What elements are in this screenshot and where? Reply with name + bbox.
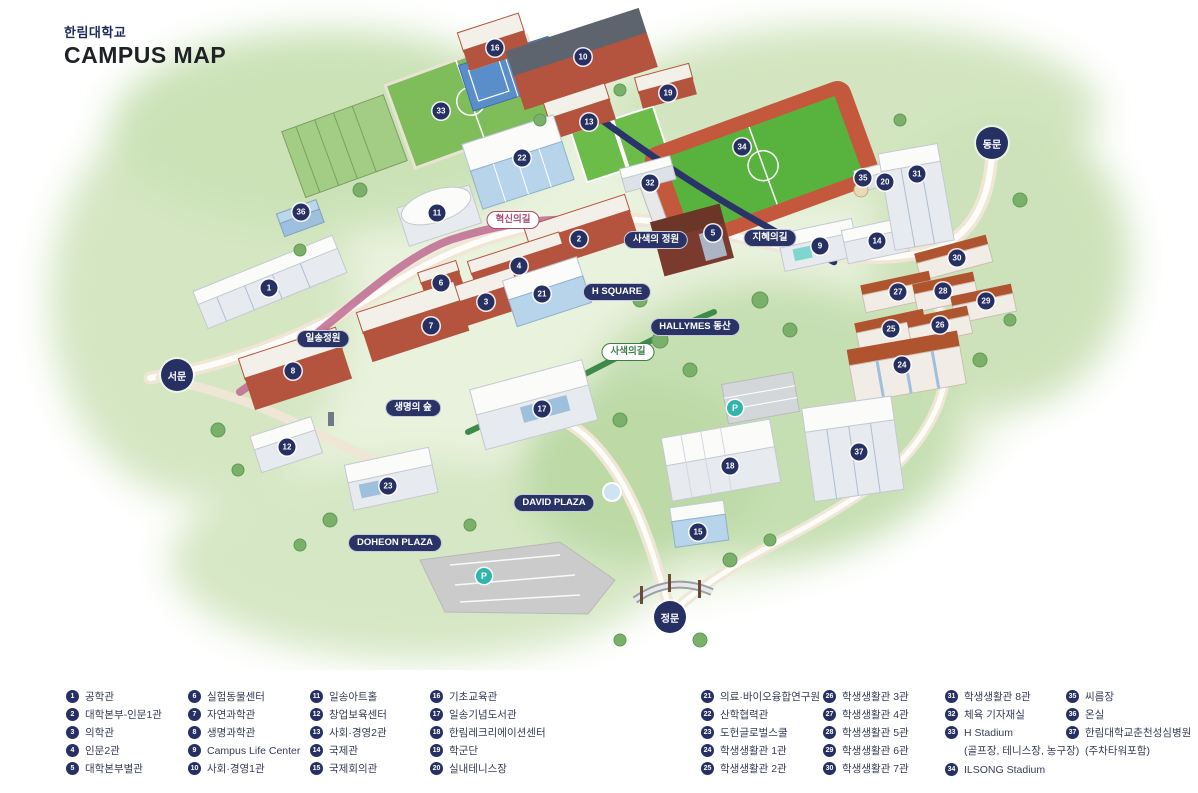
legend-item: 33H Stadium(골프장, 테니스장, 농구장)	[945, 726, 1079, 758]
legend-item: 18한림레크리에이션센터	[430, 726, 546, 739]
legend-entry: 1공학관	[66, 690, 162, 703]
legend-label: 일송기념도서관	[449, 707, 517, 722]
legend-label: 도헌글로벌스쿨	[720, 725, 788, 740]
gate-badge: 동문	[976, 127, 1008, 159]
legend-item: 31학생생활관 8관	[945, 690, 1079, 703]
legend-number: 2	[66, 708, 79, 721]
legend-entry: 12창업보육센터	[310, 708, 387, 721]
legend-label: 학생생활관 4관	[842, 707, 909, 722]
path-label: 지혜의길	[744, 229, 797, 247]
legend-number: 10	[188, 762, 201, 775]
legend-label: 국제관	[329, 743, 358, 758]
legend-entry: 16기초교육관	[430, 690, 546, 703]
building-marker: 25	[883, 321, 900, 338]
legend-item: 4인문2관	[66, 744, 162, 757]
legend-entry: 26학생생활관 3관	[823, 690, 909, 703]
building-marker: 6	[433, 275, 450, 292]
legend-number: 8	[188, 726, 201, 739]
building-marker: 15	[690, 524, 707, 541]
legend-number: 6	[188, 690, 201, 703]
legend-entry: 33H Stadium	[945, 726, 1079, 739]
legend-label: 국제회의관	[329, 761, 377, 776]
building-marker: 12	[279, 439, 296, 456]
legend-column: 16기초교육관17일송기념도서관18한림레크리에이션센터19학군단20실내테니스…	[430, 690, 546, 775]
legend-entry: 17일송기념도서관	[430, 708, 546, 721]
legend-item: 24학생생활관 1관	[701, 744, 820, 757]
legend-item: 16기초교육관	[430, 690, 546, 703]
building-marker: 20	[877, 174, 894, 191]
parking-icon: P	[476, 568, 492, 584]
building-marker: 18	[722, 458, 739, 475]
legend-entry: 15국제회의관	[310, 762, 387, 775]
path-label: 혁신의길	[487, 211, 540, 229]
building-marker: 11	[429, 205, 446, 222]
legend-number: 4	[66, 744, 79, 757]
legend-number: 25	[701, 762, 714, 775]
building-marker: 14	[869, 233, 886, 250]
legend-sublabel: (주차타워포함)	[1085, 743, 1191, 758]
legend-entry: 8생명과학관	[188, 726, 300, 739]
legend-number: 34	[945, 763, 958, 776]
place-label: 사색의 정원	[624, 231, 688, 249]
legend-entry: 14국제관	[310, 744, 387, 757]
building-marker: 36	[293, 204, 310, 221]
legend-item: 26학생생활관 3관	[823, 690, 909, 703]
legend-number: 15	[310, 762, 323, 775]
legend-label: 학생생활관 6관	[842, 743, 909, 758]
legend-label: 자연과학관	[207, 707, 255, 722]
legend-number: 28	[823, 726, 836, 739]
gate-badge: 정문	[654, 601, 686, 633]
place-label: 생명의 숲	[385, 399, 441, 417]
legend-entry: 34ILSONG Stadium	[945, 763, 1079, 776]
legend-item: 19학군단	[430, 744, 546, 757]
legend-item: 34ILSONG Stadium	[945, 763, 1079, 776]
legend-entry: 30학생생활관 7관	[823, 762, 909, 775]
building-marker: 8	[285, 363, 302, 380]
building-marker: 1	[261, 280, 278, 297]
legend-item: 7자연과학관	[188, 708, 300, 721]
building-marker: 13	[581, 114, 598, 131]
legend-entry: 4인문2관	[66, 744, 162, 757]
legend-column: 6실험동물센터7자연과학관8생명과학관9Campus Life Center10…	[188, 690, 300, 775]
legend-label: 기초교육관	[449, 689, 497, 704]
legend-number: 9	[188, 744, 201, 757]
legend-label: 의료·바이오융합연구원	[720, 689, 820, 704]
legend-number: 20	[430, 762, 443, 775]
legend-item: 37한림대학교춘천성심병원(주차타워포함)	[1066, 726, 1191, 758]
legend-item: 28학생생활관 5관	[823, 726, 909, 739]
place-label: H SQUARE	[583, 283, 651, 301]
legend-label: 사회·경영2관	[329, 725, 387, 740]
legend-entry: 10사회·경영1관	[188, 762, 300, 775]
legend-column: 31학생생활관 8관32체육 기자재실33H Stadium(골프장, 테니스장…	[945, 690, 1079, 776]
legend-entry: 23도헌글로벌스쿨	[701, 726, 820, 739]
legend-item: 29학생생활관 6관	[823, 744, 909, 757]
legend-entry: 2대학본부-인문1관	[66, 708, 162, 721]
building-marker: 29	[978, 293, 995, 310]
legend-item: 30학생생활관 7관	[823, 762, 909, 775]
legend-entry: 31학생생활관 8관	[945, 690, 1079, 703]
legend-number: 19	[430, 744, 443, 757]
legend-item: 36온실	[1066, 708, 1191, 721]
legend-number: 3	[66, 726, 79, 739]
legend-label: 학생생활관 7관	[842, 761, 909, 776]
building-marker: 19	[660, 85, 677, 102]
legend-label: 일송아트홀	[329, 689, 377, 704]
legend-item: 35씨름장	[1066, 690, 1191, 703]
legend-item: 32체육 기자재실	[945, 708, 1079, 721]
building-marker: 28	[935, 283, 952, 300]
legend-label: 학군단	[449, 743, 478, 758]
place-label: DAVID PLAZA	[513, 494, 594, 512]
legend-item: 9Campus Life Center	[188, 744, 300, 757]
legend-item: 15국제회의관	[310, 762, 387, 775]
legend-label: 산학협력관	[720, 707, 768, 722]
place-label: HALLYMES 동산	[650, 318, 740, 336]
legend-number: 17	[430, 708, 443, 721]
building-marker: 37	[851, 444, 868, 461]
building-marker: 22	[514, 150, 531, 167]
legend-number: 7	[188, 708, 201, 721]
legend-column: 11일송아트홀12창업보육센터13사회·경영2관14국제관15국제회의관	[310, 690, 387, 775]
legend-item: 6실험동물센터	[188, 690, 300, 703]
legend-number: 37	[1066, 726, 1079, 739]
legend-label: 공학관	[85, 689, 114, 704]
legend-number: 23	[701, 726, 714, 739]
parking-icon: P	[727, 400, 743, 416]
legend-label: 대학본부별관	[85, 761, 143, 776]
building-marker: 34	[734, 139, 751, 156]
building-marker: 4	[511, 258, 528, 275]
legend-entry: 27학생생활관 4관	[823, 708, 909, 721]
legend-number: 32	[945, 708, 958, 721]
legend-number: 27	[823, 708, 836, 721]
legend-entry: 32체육 기자재실	[945, 708, 1079, 721]
legend-entry: 35씨름장	[1066, 690, 1191, 703]
legend-entry: 36온실	[1066, 708, 1191, 721]
legend-label: 학생생활관 3관	[842, 689, 909, 704]
legend-number: 30	[823, 762, 836, 775]
legend-item: 1공학관	[66, 690, 162, 703]
legend-item: 3의학관	[66, 726, 162, 739]
building-marker: 3	[478, 294, 495, 311]
building-marker: 9	[812, 238, 829, 255]
legend-label: 씨름장	[1085, 689, 1114, 704]
building-marker: 17	[534, 401, 551, 418]
building-marker: 24	[894, 357, 911, 374]
legend-entry: 7자연과학관	[188, 708, 300, 721]
legend-label: 한림레크리에이션센터	[449, 725, 546, 740]
legend-entry: 28학생생활관 5관	[823, 726, 909, 739]
building-marker: 7	[423, 318, 440, 335]
building-marker: 26	[932, 317, 949, 334]
legend-entry: 25학생생활관 2관	[701, 762, 820, 775]
legend-number: 29	[823, 744, 836, 757]
building-marker: 32	[642, 175, 659, 192]
legend-item: 21의료·바이오융합연구원	[701, 690, 820, 703]
legend-label: 학생생활관 1관	[720, 743, 787, 758]
legend-entry: 29학생생활관 6관	[823, 744, 909, 757]
legend-item: 12창업보육센터	[310, 708, 387, 721]
legend-item: 11일송아트홀	[310, 690, 387, 703]
legend-label: 실내테니스장	[449, 761, 507, 776]
legend-entry: 20실내테니스장	[430, 762, 546, 775]
legend-label: 사회·경영1관	[207, 761, 265, 776]
legend-item: 22산학협력관	[701, 708, 820, 721]
legend-entry: 9Campus Life Center	[188, 744, 300, 757]
legend-item: 20실내테니스장	[430, 762, 546, 775]
legend-number: 11	[310, 690, 323, 703]
building-marker: 2	[571, 231, 588, 248]
legend-column: 26학생생활관 3관27학생생활관 4관28학생생활관 5관29학생생활관 6관…	[823, 690, 909, 775]
place-label: DOHEON PLAZA	[348, 534, 442, 552]
legend-entry: 13사회·경영2관	[310, 726, 387, 739]
legend-item: 13사회·경영2관	[310, 726, 387, 739]
building-marker: 27	[890, 284, 907, 301]
map-overlays: 1234567891011121314151617181920212223242…	[0, 0, 1198, 670]
legend-label: 학생생활관 8관	[964, 689, 1031, 704]
building-marker: 35	[855, 170, 872, 187]
legend-number: 26	[823, 690, 836, 703]
campus-map: 1234567891011121314151617181920212223242…	[0, 0, 1198, 670]
legend-column: 1공학관2대학본부-인문1관3의학관4인문2관5대학본부별관	[66, 690, 162, 775]
legend-label: 학생생활관 2관	[720, 761, 787, 776]
legend-entry: 18한림레크리에이션센터	[430, 726, 546, 739]
legend-number: 22	[701, 708, 714, 721]
legend-column: 35씨름장36온실37한림대학교춘천성심병원(주차타워포함)	[1066, 690, 1191, 758]
page-title: CAMPUS MAP	[64, 42, 226, 69]
legend-label: 체육 기자재실	[964, 707, 1025, 722]
path-label: 사색의길	[602, 343, 655, 361]
legend-item: 17일송기념도서관	[430, 708, 546, 721]
legend-number: 1	[66, 690, 79, 703]
building-marker: 10	[575, 49, 592, 66]
building-marker: 16	[487, 40, 504, 57]
building-marker: 21	[534, 286, 551, 303]
legend-entry: 22산학협력관	[701, 708, 820, 721]
legend-entry: 37한림대학교춘천성심병원	[1066, 726, 1191, 739]
legend-label: 대학본부-인문1관	[85, 707, 162, 722]
university-name: 한림대학교	[64, 22, 226, 41]
legend-number: 5	[66, 762, 79, 775]
legend-entry: 5대학본부별관	[66, 762, 162, 775]
legend-number: 21	[701, 690, 714, 703]
building-marker: 23	[380, 478, 397, 495]
legend-label: Campus Life Center	[207, 745, 300, 757]
legend-number: 12	[310, 708, 323, 721]
legend-label: 학생생활관 5관	[842, 725, 909, 740]
legend-number: 18	[430, 726, 443, 739]
legend-label: 온실	[1085, 707, 1104, 722]
legend-entry: 21의료·바이오융합연구원	[701, 690, 820, 703]
legend-label: 실험동물센터	[207, 689, 265, 704]
legend-number: 16	[430, 690, 443, 703]
legend-sublabel: (골프장, 테니스장, 농구장)	[964, 743, 1079, 758]
legend: 1공학관2대학본부-인문1관3의학관4인문2관5대학본부별관6실험동물센터7자연…	[0, 686, 1198, 793]
legend-item: 8생명과학관	[188, 726, 300, 739]
legend-label: 인문2관	[85, 743, 120, 758]
legend-item: 14국제관	[310, 744, 387, 757]
gate-badge: 서문	[161, 359, 193, 391]
legend-label: H Stadium	[964, 727, 1013, 739]
building-marker: 30	[949, 250, 966, 267]
building-marker: 33	[433, 103, 450, 120]
legend-item: 10사회·경영1관	[188, 762, 300, 775]
legend-entry: 19학군단	[430, 744, 546, 757]
building-marker: 31	[909, 166, 926, 183]
legend-label: ILSONG Stadium	[964, 764, 1045, 776]
legend-item: 25학생생활관 2관	[701, 762, 820, 775]
legend-number: 24	[701, 744, 714, 757]
place-label: 일송정원	[297, 330, 350, 348]
legend-item: 2대학본부-인문1관	[66, 708, 162, 721]
legend-label: 생명과학관	[207, 725, 255, 740]
legend-label: 한림대학교춘천성심병원	[1085, 725, 1191, 740]
legend-entry: 24학생생활관 1관	[701, 744, 820, 757]
legend-number: 13	[310, 726, 323, 739]
legend-label: 의학관	[85, 725, 114, 740]
legend-item: 27학생생활관 4관	[823, 708, 909, 721]
legend-entry: 11일송아트홀	[310, 690, 387, 703]
legend-label: 창업보육센터	[329, 707, 387, 722]
legend-item: 5대학본부별관	[66, 762, 162, 775]
page-header: 한림대학교 CAMPUS MAP	[64, 22, 226, 69]
legend-entry: 6실험동물센터	[188, 690, 300, 703]
legend-column: 21의료·바이오융합연구원22산학협력관23도헌글로벌스쿨24학생생활관 1관2…	[701, 690, 820, 775]
legend-number: 33	[945, 726, 958, 739]
legend-number: 36	[1066, 708, 1079, 721]
legend-item: 23도헌글로벌스쿨	[701, 726, 820, 739]
building-marker: 5	[705, 225, 722, 242]
campus-map-page: 한림대학교 CAMPUS MAP	[0, 0, 1198, 793]
legend-entry: 3의학관	[66, 726, 162, 739]
legend-number: 14	[310, 744, 323, 757]
legend-number: 35	[1066, 690, 1079, 703]
legend-number: 31	[945, 690, 958, 703]
